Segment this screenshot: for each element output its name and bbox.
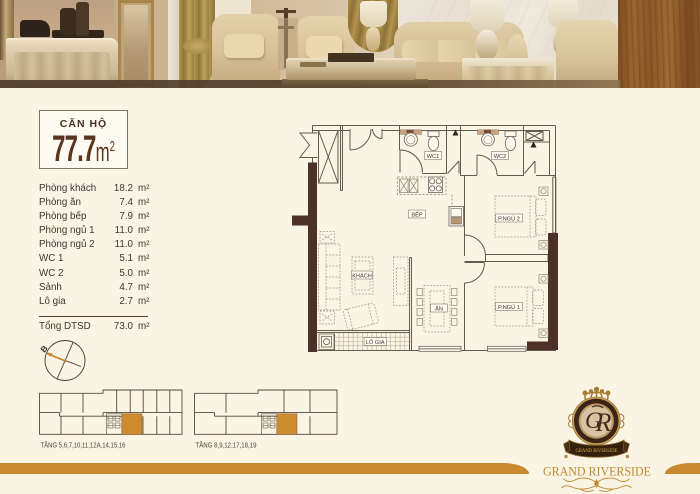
svg-text:KHÁCH: KHÁCH bbox=[352, 272, 372, 279]
svg-text:WC2: WC2 bbox=[494, 154, 506, 160]
svg-text:LÔ GIA: LÔ GIA bbox=[366, 339, 385, 346]
svg-text:GRAND RIVERSIDE: GRAND RIVERSIDE bbox=[576, 449, 618, 454]
svg-text:TẦNG 5,6,7,10,11,12A,14,15,16: TẦNG 5,6,7,10,11,12A,14,15,16 bbox=[41, 440, 126, 450]
svg-text:R: R bbox=[595, 408, 612, 437]
svg-text:ĂN: ĂN bbox=[435, 305, 443, 312]
svg-text:P.NGỦ 1: P.NGỦ 1 bbox=[498, 304, 520, 311]
svg-text:WC1: WC1 bbox=[427, 154, 439, 160]
svg-text:TẦNG 8,9,12,17,18,19: TẦNG 8,9,12,17,18,19 bbox=[196, 440, 257, 450]
svg-text:GRAND RIVERSIDE: GRAND RIVERSIDE bbox=[543, 464, 651, 479]
svg-text:BẾP: BẾP bbox=[411, 211, 422, 218]
svg-text:P.NGỦ 2: P.NGỦ 2 bbox=[498, 215, 520, 222]
